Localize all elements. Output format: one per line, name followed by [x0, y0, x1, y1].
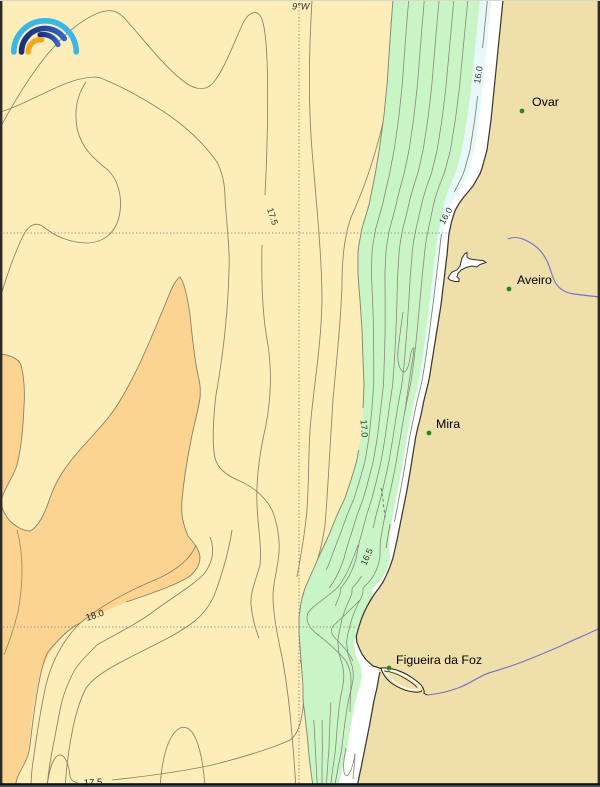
svg-text:9°W: 9°W: [292, 2, 311, 12]
svg-text:Ovar: Ovar: [532, 95, 559, 109]
svg-text:Figueira da Foz: Figueira da Foz: [396, 653, 482, 667]
svg-text:Mira: Mira: [436, 417, 460, 431]
svg-text:17.0: 17.0: [359, 419, 370, 437]
svg-text:Aveiro: Aveiro: [517, 273, 552, 287]
